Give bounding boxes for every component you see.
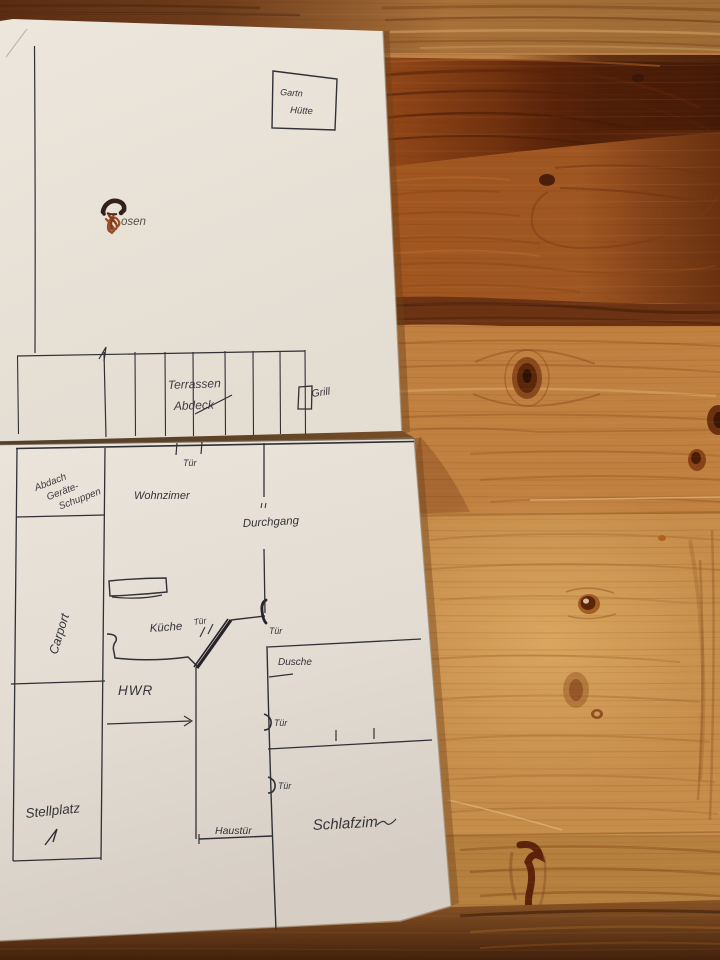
svg-text:Tür: Tür: [269, 626, 283, 636]
svg-text:Terrassen: Terrassen: [168, 376, 222, 392]
svg-text:HWR: HWR: [118, 683, 153, 698]
svg-text:osen: osen: [121, 216, 146, 228]
svg-text:Schlafzim: Schlafzim: [312, 814, 378, 834]
svg-text:Tür: Tür: [183, 458, 198, 468]
svg-text:Abdeck: Abdeck: [173, 398, 215, 413]
svg-text:Hütte: Hütte: [290, 105, 313, 117]
svg-text:Küche: Küche: [149, 621, 182, 635]
svg-text:Wohnzimer: Wohnzimer: [134, 490, 191, 502]
svg-text:Gartn: Gartn: [280, 87, 303, 99]
svg-text:Tür: Tür: [274, 718, 288, 728]
svg-text:Dusche: Dusche: [278, 657, 312, 668]
svg-text:Haustür: Haustür: [215, 825, 252, 837]
svg-text:Tür: Tür: [278, 781, 292, 791]
